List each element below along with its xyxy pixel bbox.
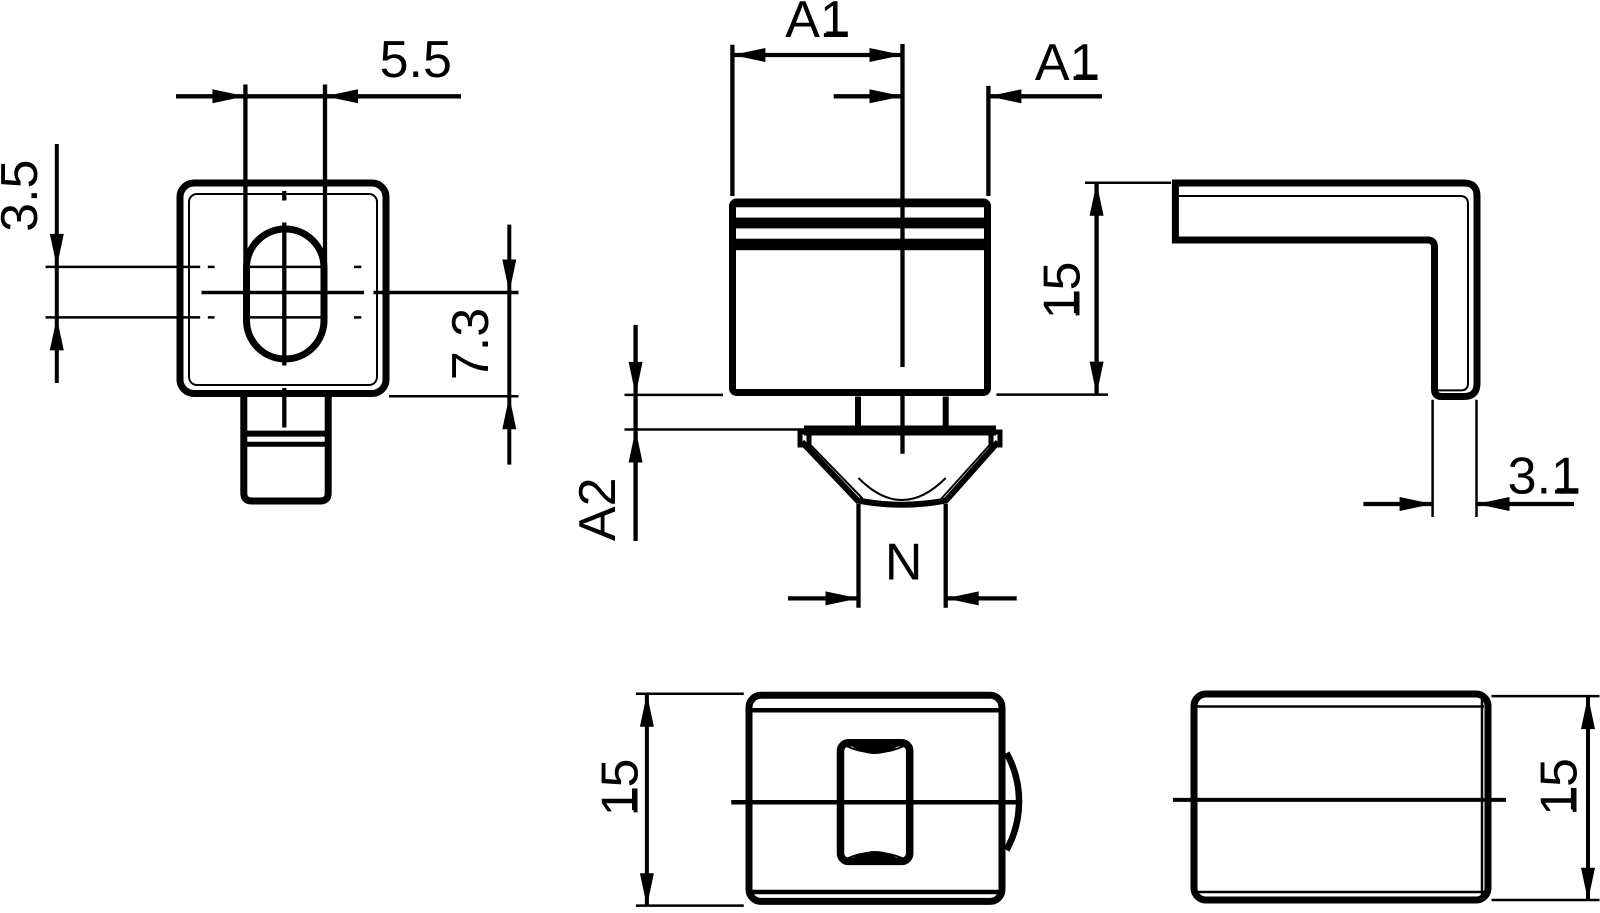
svg-text:7.3: 7.3 xyxy=(442,308,500,380)
svg-text:A2: A2 xyxy=(569,477,627,541)
svg-text:5.5: 5.5 xyxy=(380,31,452,89)
svg-text:3.5: 3.5 xyxy=(0,160,49,232)
svg-text:3.1: 3.1 xyxy=(1508,448,1580,506)
svg-text:15: 15 xyxy=(1033,262,1091,320)
svg-text:N: N xyxy=(885,534,923,592)
svg-text:15: 15 xyxy=(592,759,650,817)
svg-text:15: 15 xyxy=(1530,758,1588,816)
svg-text:A1: A1 xyxy=(1035,34,1099,92)
svg-text:A1: A1 xyxy=(785,0,849,49)
